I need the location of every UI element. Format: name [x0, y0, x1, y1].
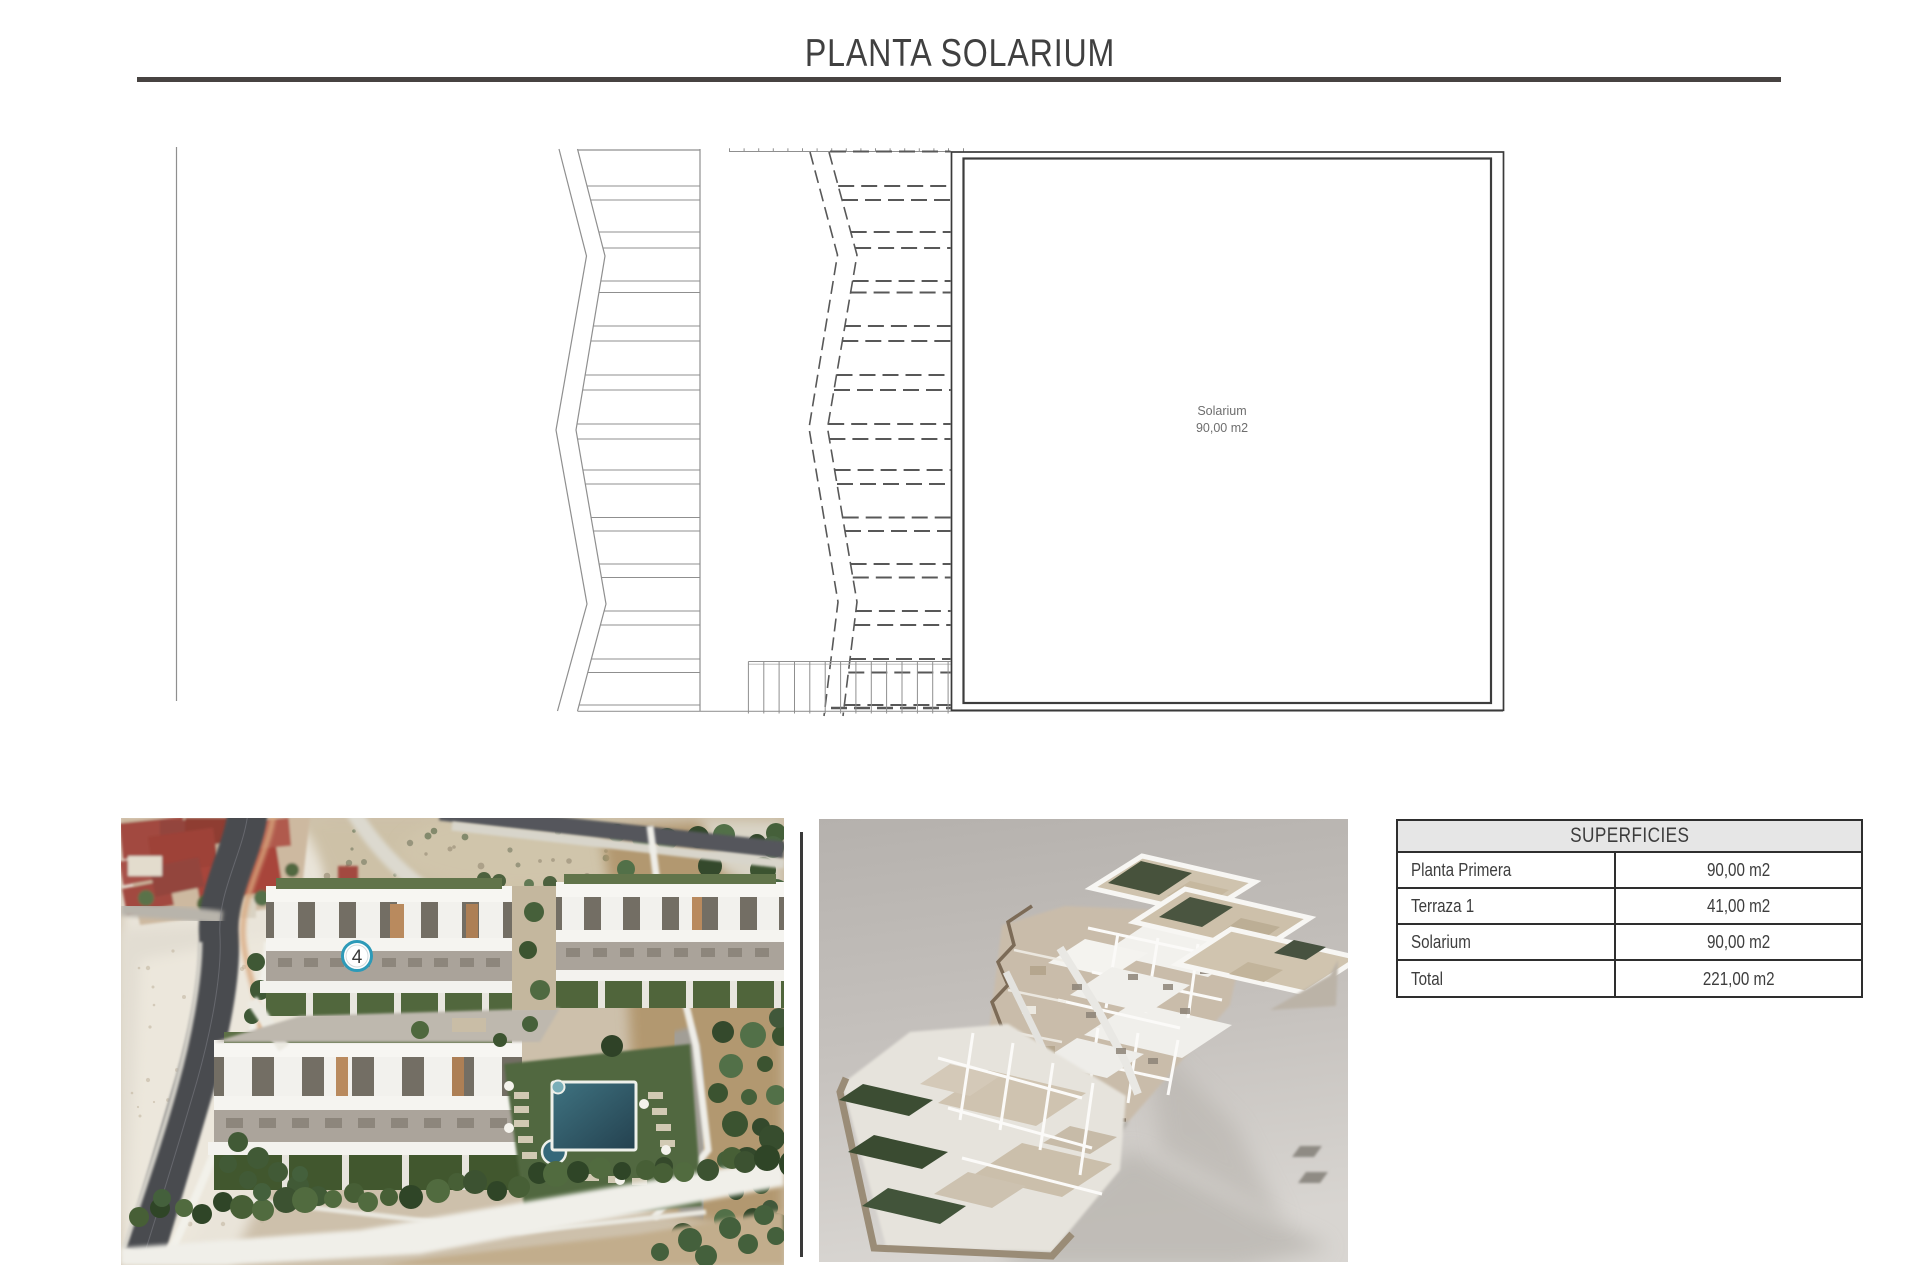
- svg-text:90,00 m2: 90,00 m2: [1196, 421, 1248, 435]
- svg-text:Solarium: Solarium: [1197, 404, 1246, 418]
- svg-text:4: 4: [352, 947, 363, 968]
